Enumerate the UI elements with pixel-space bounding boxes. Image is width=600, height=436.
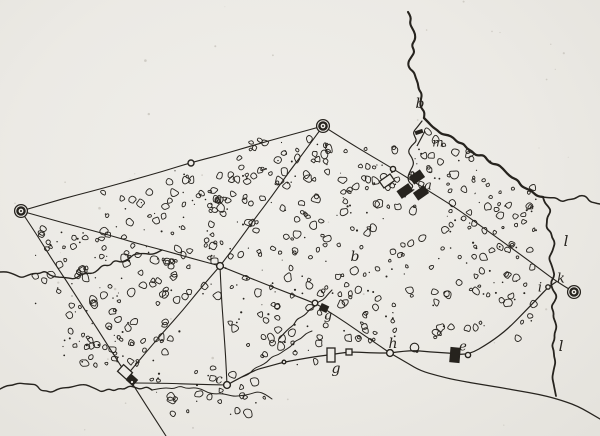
- survey-sight-line: [220, 266, 390, 353]
- map-label-m-12: m: [432, 136, 443, 150]
- woodland-trees: [32, 128, 537, 418]
- woodland-edges: [152, 331, 312, 399]
- map-label-e-5: e: [459, 340, 467, 355]
- survey-sight-line: [323, 126, 574, 292]
- bottom-stream: [0, 383, 152, 392]
- station-marker: [15, 205, 28, 218]
- survey-point-marker: [312, 300, 318, 306]
- map-label-i-8: i: [538, 281, 542, 296]
- map-label-l-11: l: [559, 337, 564, 355]
- survey-sight-line: [220, 266, 227, 385]
- map-label-b-1: b: [416, 96, 425, 112]
- survey-sight-line: [21, 126, 323, 211]
- roads: [227, 282, 600, 419]
- buildings: [118, 170, 461, 385]
- river-east-arm: [543, 196, 600, 204]
- road-line: [227, 352, 390, 385]
- flag-marker: [415, 129, 425, 146]
- left-stream: [0, 250, 162, 279]
- building-open: [327, 348, 335, 362]
- map-label-a-0: a: [424, 179, 432, 194]
- survey-point-marker: [224, 382, 231, 389]
- map-label-g-4: g: [324, 309, 332, 324]
- river-l-south: [543, 197, 556, 396]
- river-main: [424, 118, 543, 197]
- map-labels: abbcgeghikllm: [215, 96, 568, 388]
- survey-point-marker: [390, 166, 395, 171]
- loop-dot: [416, 350, 419, 353]
- flag-banner: [415, 129, 424, 135]
- map-label-l-10: l: [564, 232, 569, 250]
- map-label-h-7: h: [388, 336, 397, 352]
- station-marker: [317, 120, 330, 133]
- survey-point-marker: [217, 263, 224, 270]
- survey-sketch-map: abbcgeghikllm: [0, 0, 600, 436]
- station-marker: [568, 286, 581, 299]
- survey-point-marker: [130, 380, 134, 384]
- building-open: [346, 349, 352, 355]
- wood-edge: [242, 331, 312, 377]
- road-loop-marker: [410, 343, 419, 353]
- scanned-map-page: abbcgeghikllm: [0, 0, 600, 436]
- survey-lines: [21, 126, 574, 436]
- survey-point-marker: [282, 360, 286, 364]
- survey-point-marker: [188, 160, 194, 166]
- survey-point-marker: [546, 285, 550, 289]
- map-label-b-2: b: [351, 249, 360, 265]
- building-open: [379, 174, 394, 188]
- road-line: [390, 353, 600, 419]
- survey-sight-line: [135, 383, 227, 385]
- building-solid: [397, 184, 412, 198]
- map-label-k-9: k: [557, 272, 565, 287]
- map-label-c-3: c: [215, 373, 223, 388]
- map-label-g-6: g: [332, 361, 341, 377]
